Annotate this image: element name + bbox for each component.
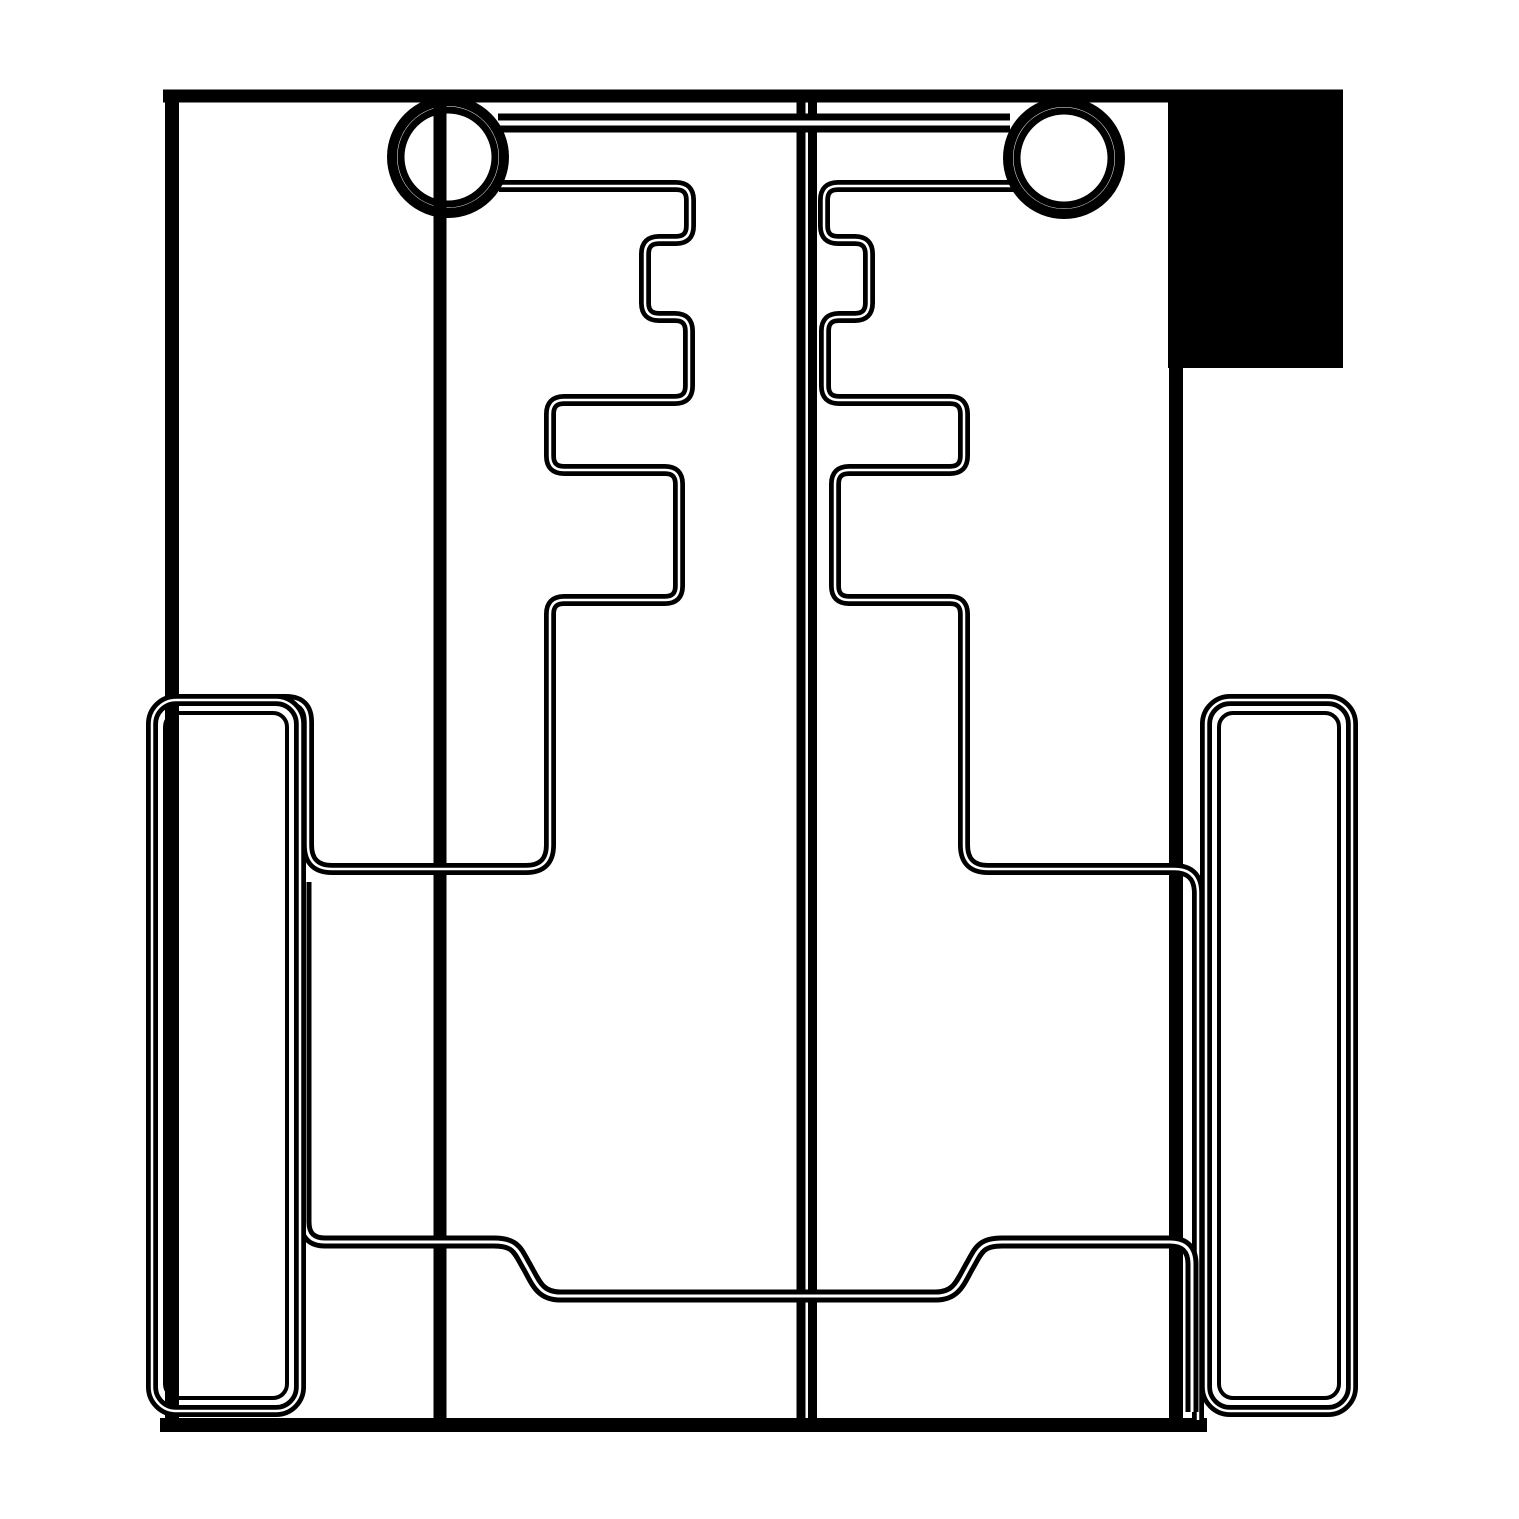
right-plate-contour <box>824 186 1198 1420</box>
left-plate-contour <box>172 186 690 869</box>
wheel-right-outer-core <box>1206 700 1352 1411</box>
technical-drawing-canvas <box>0 0 1519 1519</box>
hub-left-ring-1 <box>401 110 495 204</box>
wheel-right-outer <box>1206 700 1352 1411</box>
left-plate-contour-core <box>172 186 690 869</box>
wheel-left-inner <box>165 713 287 1398</box>
drawing-page <box>0 0 1519 1519</box>
corner-block <box>1168 91 1343 368</box>
hub-right-ring-0 <box>1008 102 1120 214</box>
right-plate-contour-core <box>824 186 1198 1420</box>
hub-left-ring-0 <box>392 101 504 213</box>
hub-right-ring-1 <box>1017 111 1111 205</box>
wheel-right-inner <box>1219 713 1339 1398</box>
